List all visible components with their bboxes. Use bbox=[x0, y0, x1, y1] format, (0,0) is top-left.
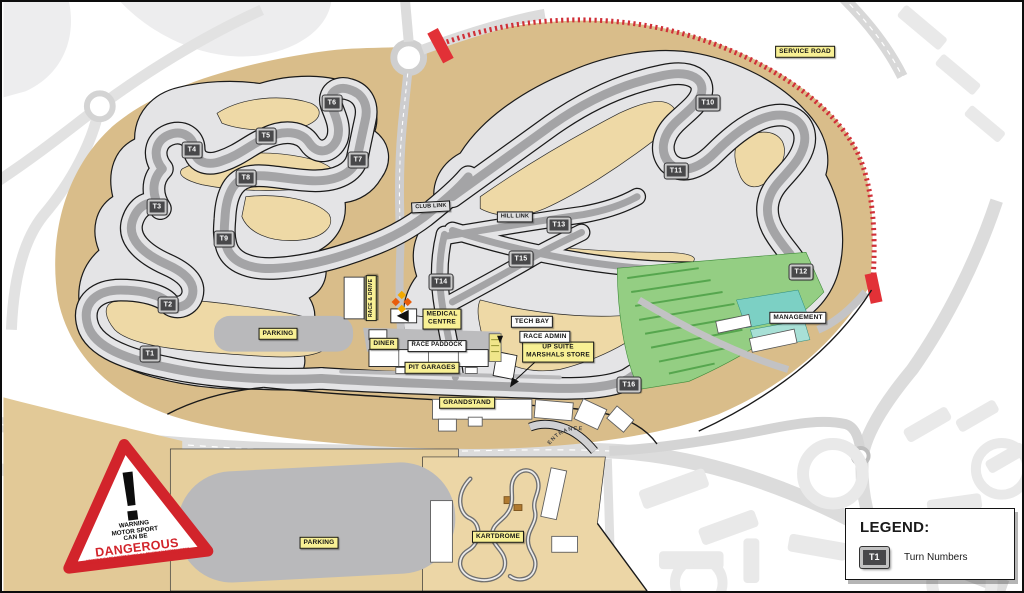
map-label-pit-garages: PIT GARAGES bbox=[405, 362, 460, 374]
turn-marker-t10: T10 bbox=[697, 96, 720, 111]
turn-marker-t1: T1 bbox=[141, 347, 160, 362]
map-label-service-road: SERVICE ROAD bbox=[775, 46, 835, 58]
turn-marker-t11: T11 bbox=[665, 164, 688, 179]
map-label-club-link: CLUB LINK bbox=[411, 200, 451, 213]
warning-sign: ! WARNING MOTOR SPORT CAN BE DANGEROUS D… bbox=[46, 429, 218, 587]
map-label-parking-south: PARKING bbox=[300, 537, 339, 549]
map-label-tech-bay: TECH BAY bbox=[511, 316, 553, 328]
legend-title: LEGEND: bbox=[860, 519, 930, 536]
turn-marker-t14: T14 bbox=[430, 275, 453, 290]
turn-marker-t2: T2 bbox=[159, 298, 178, 313]
map-label-grandstand: GRANDSTAND bbox=[439, 397, 495, 409]
legend-turn-marker-icon: T1 bbox=[860, 547, 889, 568]
turn-marker-t16: T16 bbox=[618, 378, 641, 393]
legend-box: LEGEND: T1 Turn Numbers bbox=[845, 508, 1015, 580]
map-label-race-paddock: RACE PADDOCK bbox=[408, 340, 467, 352]
turn-marker-t5: T5 bbox=[257, 129, 276, 144]
turn-marker-t4: T4 bbox=[183, 143, 202, 158]
map-label-diner: DINER bbox=[369, 338, 398, 350]
turn-marker-t15: T15 bbox=[510, 252, 533, 267]
turn-marker-t3: T3 bbox=[148, 200, 167, 215]
map-label-race-admin: RACE ADMIN bbox=[519, 331, 570, 343]
map-label-hill-link: HILL LINK bbox=[497, 211, 533, 222]
turn-marker-t12: T12 bbox=[790, 265, 813, 280]
turn-marker-t7: T7 bbox=[349, 153, 368, 168]
map-label-medical-centre: MEDICAL CENTRE bbox=[422, 309, 461, 330]
turn-marker-t8: T8 bbox=[237, 171, 256, 186]
turn-marker-t9: T9 bbox=[215, 232, 234, 247]
map-label-up-suite: UP SUITE MARSHALS STORE bbox=[522, 342, 594, 363]
map-label-race-and-drive: RACE & DRIVE bbox=[366, 275, 377, 321]
turn-marker-t6: T6 bbox=[323, 96, 342, 111]
legend-item-label: Turn Numbers bbox=[904, 552, 968, 563]
map-label-parking-west: PARKING bbox=[259, 328, 298, 340]
circuit-map: ENTRANCE SERVICE ROADPARKINGPARKINGMEDIC… bbox=[0, 0, 1024, 593]
map-label-kartdrome: KARTDROME bbox=[472, 531, 524, 543]
turn-marker-t13: T13 bbox=[548, 218, 571, 233]
map-label-management: MANAGEMENT bbox=[769, 312, 826, 324]
